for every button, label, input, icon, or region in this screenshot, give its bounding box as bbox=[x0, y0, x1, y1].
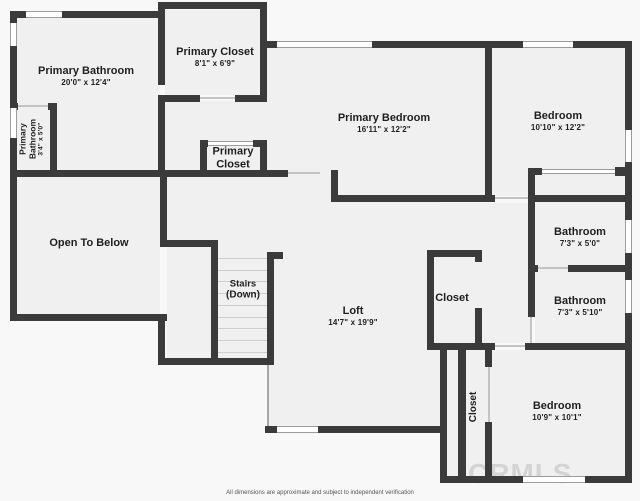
floor-area bbox=[17, 18, 160, 314]
room-label-closet-bedroom: Closet bbox=[468, 392, 481, 423]
wall-segment bbox=[331, 195, 495, 202]
wall-segment bbox=[211, 247, 218, 365]
floor-area bbox=[267, 358, 440, 426]
floor-plan: CRMLS bbox=[0, 0, 640, 501]
wall-segment bbox=[585, 476, 632, 483]
window bbox=[26, 11, 62, 18]
window bbox=[625, 130, 632, 162]
window bbox=[625, 280, 632, 313]
room-name: Loft bbox=[328, 305, 378, 318]
wall-segment bbox=[427, 343, 495, 350]
wall-segment bbox=[475, 250, 482, 262]
door-opening bbox=[538, 267, 568, 269]
wall-segment bbox=[485, 350, 492, 367]
room-label-primary-bedroom: Primary Bedroom 16'11" x 12'2" bbox=[338, 112, 430, 135]
window bbox=[10, 23, 17, 46]
room-label-open-to-below: Open To Below bbox=[49, 237, 128, 250]
wall-segment bbox=[160, 240, 218, 247]
wall-segment bbox=[568, 265, 632, 272]
room-label-primary-bathroom-small: Primary Bathroom 3'4" x 5'0" bbox=[19, 113, 46, 165]
door-opening bbox=[495, 197, 528, 199]
room-name: Primary Closet bbox=[176, 46, 254, 59]
room-name: Closet bbox=[468, 392, 481, 423]
window bbox=[523, 476, 585, 483]
room-subtext: (Down) bbox=[226, 290, 260, 302]
room-dimensions: 20'0" x 12'4" bbox=[38, 77, 134, 87]
room-name: Bathroom bbox=[554, 226, 606, 239]
disclaimer-text: All dimensions are approximate and subje… bbox=[226, 490, 414, 496]
door-opening bbox=[288, 172, 320, 174]
wall-segment bbox=[318, 426, 447, 433]
stair-tread bbox=[218, 258, 267, 259]
room-label-closet-hall: Closet bbox=[435, 292, 469, 305]
wall-segment bbox=[528, 168, 535, 317]
door-opening bbox=[200, 97, 235, 99]
room-name: Primary Bathroom bbox=[19, 113, 38, 165]
room-name: Bathroom bbox=[554, 295, 606, 308]
wall-segment bbox=[625, 41, 632, 483]
window bbox=[277, 426, 318, 433]
door-opening bbox=[495, 345, 525, 347]
room-name: Primary Bedroom bbox=[338, 112, 430, 125]
wall-segment bbox=[528, 265, 538, 272]
door-opening bbox=[530, 317, 532, 343]
railing-line bbox=[267, 365, 269, 429]
sliding-door bbox=[542, 169, 615, 174]
stair-tread bbox=[218, 340, 267, 341]
room-label-bathroom-upper: Bathroom 7'3" x 5'0" bbox=[554, 226, 606, 249]
wall-segment bbox=[485, 41, 492, 202]
wall-segment bbox=[158, 2, 267, 9]
room-name: Open To Below bbox=[49, 237, 128, 250]
room-name: Bedroom bbox=[531, 110, 585, 123]
room-name: Primary Bathroom bbox=[38, 65, 134, 78]
window bbox=[625, 220, 632, 253]
stair-tread bbox=[218, 305, 267, 306]
room-dimensions: 14'7" x 19'9" bbox=[328, 317, 378, 327]
room-label-bedroom-upper: Bedroom 10'10" x 12'2" bbox=[531, 110, 585, 133]
wall-segment bbox=[528, 168, 542, 175]
door-opening bbox=[18, 105, 48, 107]
window bbox=[523, 41, 573, 48]
wall-segment bbox=[200, 140, 207, 177]
room-label-primary-closet-small: Primary Closet bbox=[207, 146, 259, 171]
wall-segment bbox=[160, 177, 167, 247]
wall-segment bbox=[440, 476, 523, 483]
window bbox=[10, 108, 17, 138]
room-label-primary-closet: Primary Closet 8'1" x 6'9" bbox=[176, 46, 254, 69]
wall-segment bbox=[158, 101, 165, 177]
wall-segment bbox=[50, 103, 57, 177]
room-dimensions: 7'3" x 5'10" bbox=[554, 307, 606, 317]
room-name: Primary Closet bbox=[207, 146, 259, 171]
window bbox=[277, 41, 372, 48]
wall-segment bbox=[10, 314, 167, 321]
wall-segment bbox=[525, 343, 632, 350]
wall-segment bbox=[260, 140, 267, 177]
room-dimensions: 10'10" x 12'2" bbox=[531, 122, 585, 132]
room-label-bathroom-lower: Bathroom 7'3" x 5'10" bbox=[554, 295, 606, 318]
room-label-loft: Loft 14'7" x 19'9" bbox=[328, 305, 378, 328]
stair-tread bbox=[218, 328, 267, 329]
wall-segment bbox=[265, 426, 277, 433]
room-label-primary-bathroom: Primary Bathroom 20'0" x 12'4" bbox=[38, 65, 134, 88]
room-label-stairs: Stairs (Down) bbox=[226, 279, 260, 302]
room-name: Closet bbox=[435, 292, 469, 305]
door-opening bbox=[488, 367, 490, 422]
wall-segment bbox=[458, 350, 466, 477]
wall-segment bbox=[528, 195, 632, 202]
room-dimensions: 10'9" x 10'1" bbox=[532, 412, 582, 422]
watermark: CRMLS bbox=[468, 458, 573, 490]
room-label-bedroom-lower: Bedroom 10'9" x 10'1" bbox=[532, 400, 582, 423]
wall-segment bbox=[260, 41, 267, 102]
stair-tread bbox=[218, 270, 267, 271]
room-dimensions: 3'4" x 5'0" bbox=[38, 113, 46, 165]
room-dimensions: 7'3" x 5'0" bbox=[554, 238, 606, 248]
wall-segment bbox=[485, 422, 492, 477]
wall-segment bbox=[615, 167, 625, 176]
wall-segment bbox=[10, 11, 17, 321]
floor-area bbox=[167, 177, 440, 358]
room-name: Stairs bbox=[226, 279, 260, 290]
room-dimensions: 8'1" x 6'9" bbox=[176, 58, 254, 68]
wall-segment bbox=[267, 252, 283, 259]
wall-segment bbox=[158, 358, 274, 365]
stair-tread bbox=[218, 317, 267, 318]
stair-tread bbox=[218, 352, 267, 353]
room-dimensions: 16'11" x 12'2" bbox=[338, 124, 430, 134]
wall-segment bbox=[267, 252, 274, 365]
wall-segment bbox=[158, 2, 165, 85]
wall-segment bbox=[440, 343, 447, 483]
wall-segment bbox=[475, 308, 482, 343]
room-name: Bedroom bbox=[532, 400, 582, 413]
wall-segment bbox=[427, 250, 482, 257]
wall-segment bbox=[427, 250, 434, 350]
